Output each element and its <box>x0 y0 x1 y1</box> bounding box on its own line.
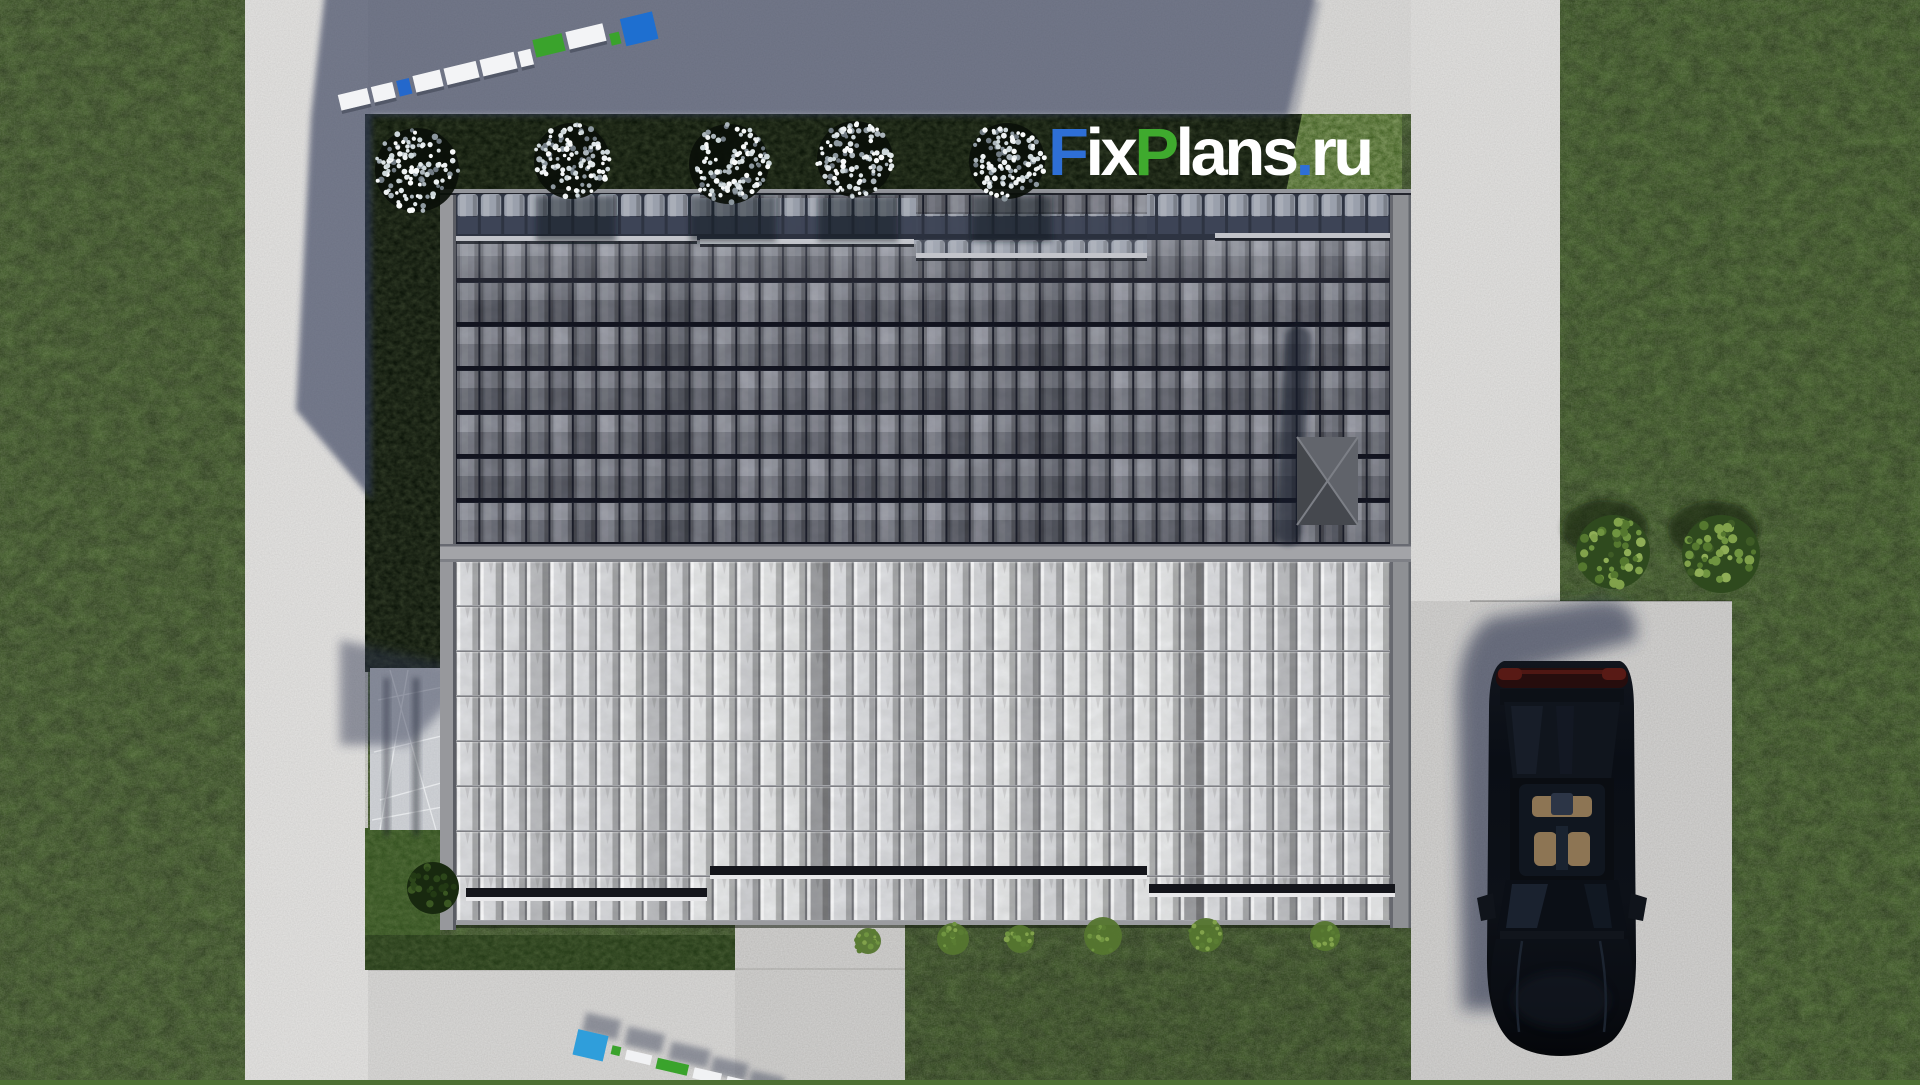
svg-text:FixPlans.ru: FixPlans.ru <box>1048 115 1371 190</box>
